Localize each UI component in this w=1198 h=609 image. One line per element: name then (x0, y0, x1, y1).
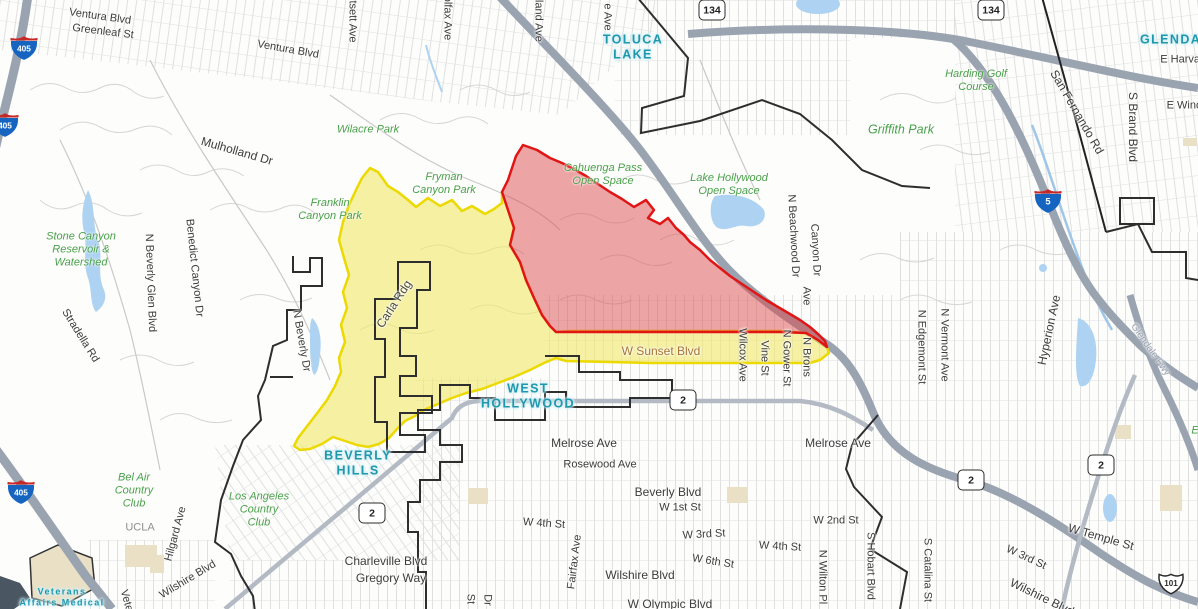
map[interactable]: TOLUCA LAKEGLENDALEWEST HOLLYWOODBEVERLY… (0, 0, 1198, 609)
evacuation-order-zone[interactable] (502, 145, 827, 347)
map-canvas[interactable] (0, 0, 1198, 609)
